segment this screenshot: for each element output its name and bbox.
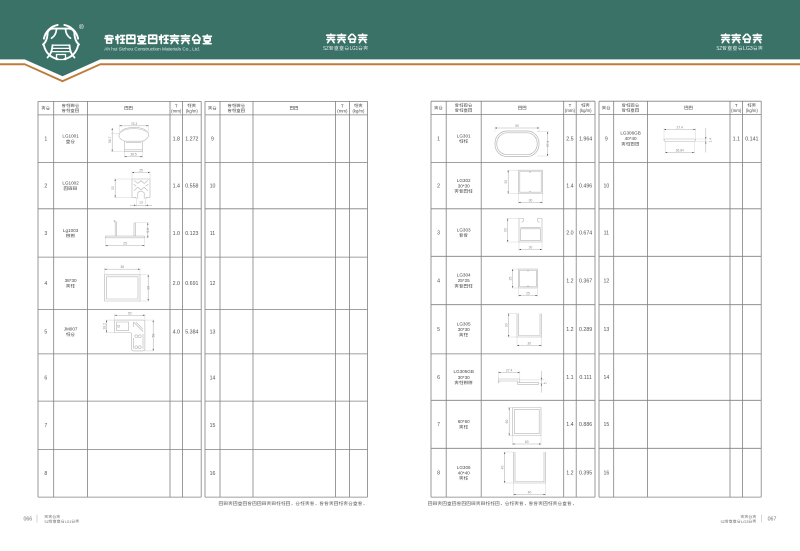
svg-text:38*30: 38*30 — [65, 278, 77, 283]
svg-text:5: 5 — [544, 382, 548, 384]
svg-text:5.384: 5.384 — [185, 330, 198, 336]
svg-text:1.4: 1.4 — [566, 422, 573, 428]
svg-text:(mm): (mm) — [337, 108, 348, 113]
svg-text:LG306: LG306 — [457, 465, 471, 470]
svg-text:LG305GB: LG305GB — [453, 369, 473, 374]
svg-text:9: 9 — [211, 137, 214, 143]
svg-text:0.496: 0.496 — [579, 184, 592, 190]
svg-text:3: 3 — [44, 231, 47, 237]
svg-text:1.1: 1.1 — [566, 375, 573, 381]
svg-text:12: 12 — [210, 281, 216, 287]
svg-text:25*25: 25*25 — [458, 278, 470, 283]
svg-text:LG306GB: LG306GB — [620, 131, 640, 136]
svg-text:SZ: SZ — [44, 519, 49, 524]
svg-text:Ah hui Sizhou Construction Mat: Ah hui Sizhou Construction Materials Co.… — [104, 47, 200, 52]
svg-text:14: 14 — [210, 375, 216, 381]
svg-text:0.674: 0.674 — [579, 230, 592, 236]
svg-text:4: 4 — [437, 278, 440, 284]
svg-text:12: 12 — [603, 278, 609, 284]
svg-text:27.4: 27.4 — [506, 369, 513, 373]
svg-text:7: 7 — [44, 423, 47, 429]
svg-text:1.2: 1.2 — [566, 278, 573, 284]
svg-text:40: 40 — [528, 491, 532, 495]
svg-text:LG3: LG3 — [741, 519, 749, 524]
svg-text:1.2: 1.2 — [566, 471, 573, 477]
svg-text:11: 11 — [604, 230, 609, 236]
svg-text:60: 60 — [525, 440, 529, 444]
svg-text:(kg/m): (kg/m) — [186, 108, 198, 113]
svg-text:6: 6 — [44, 375, 47, 381]
svg-text:10: 10 — [603, 183, 609, 189]
svg-text:(mm): (mm) — [171, 108, 182, 113]
svg-text:50: 50 — [151, 334, 155, 338]
svg-text:0.111: 0.111 — [579, 375, 592, 381]
svg-text:(kg/m): (kg/m) — [580, 108, 592, 113]
svg-text:30: 30 — [504, 228, 508, 232]
svg-text:38.5: 38.5 — [130, 153, 137, 157]
svg-text:38.2: 38.2 — [102, 323, 106, 330]
svg-text:30: 30 — [504, 180, 508, 184]
svg-text:25: 25 — [509, 277, 513, 281]
svg-text:3: 3 — [437, 230, 440, 236]
svg-text:1: 1 — [437, 136, 440, 142]
svg-text:1.2: 1.2 — [566, 327, 573, 333]
svg-text:2: 2 — [437, 183, 440, 189]
svg-text:1.964: 1.964 — [579, 136, 592, 142]
svg-text:1.4: 1.4 — [709, 138, 713, 143]
svg-text:LG305: LG305 — [457, 321, 471, 326]
svg-text:LG302: LG302 — [457, 178, 471, 183]
svg-text:1.4: 1.4 — [173, 184, 180, 190]
svg-text:16: 16 — [603, 471, 609, 477]
svg-text:LG1: LG1 — [350, 46, 359, 52]
svg-text:JM007: JM007 — [64, 327, 78, 332]
svg-text:(mm): (mm) — [565, 108, 576, 113]
svg-text:30: 30 — [505, 323, 509, 327]
svg-text:11: 11 — [210, 231, 215, 237]
svg-text:30*30: 30*30 — [458, 183, 470, 188]
svg-text:13: 13 — [210, 329, 216, 335]
svg-text:8: 8 — [44, 471, 47, 477]
svg-text:066: 066 — [23, 516, 32, 522]
svg-text:37.4: 37.4 — [677, 126, 684, 130]
svg-text:0.558: 0.558 — [185, 184, 198, 190]
svg-text:SZ: SZ — [323, 46, 329, 52]
svg-text:25: 25 — [526, 292, 530, 296]
svg-text:LG1002: LG1002 — [62, 181, 79, 186]
svg-text:2: 2 — [44, 183, 47, 189]
svg-text:067: 067 — [768, 516, 777, 522]
svg-text:14: 14 — [603, 375, 609, 381]
svg-text:2.5: 2.5 — [566, 136, 573, 142]
svg-text:LG304: LG304 — [457, 273, 471, 278]
svg-text:SZ: SZ — [716, 46, 722, 52]
svg-text:0.691: 0.691 — [185, 281, 198, 287]
svg-text:5: 5 — [44, 329, 47, 335]
svg-text:0.886: 0.886 — [579, 422, 592, 428]
svg-text:1.1: 1.1 — [733, 136, 740, 142]
svg-text:0.395: 0.395 — [579, 471, 592, 477]
svg-text:15: 15 — [210, 423, 216, 429]
svg-text:2.0: 2.0 — [566, 230, 573, 236]
svg-text:40*40: 40*40 — [458, 470, 470, 475]
svg-text:13: 13 — [603, 327, 609, 333]
svg-text:33: 33 — [111, 186, 115, 190]
svg-text:25: 25 — [139, 169, 143, 173]
svg-text:Lg1003: Lg1003 — [63, 228, 79, 233]
svg-text:1: 1 — [44, 137, 47, 143]
svg-text:38: 38 — [120, 265, 124, 269]
svg-text:30: 30 — [529, 246, 533, 250]
svg-text:13: 13 — [139, 201, 143, 205]
svg-text:1.0: 1.0 — [173, 231, 180, 237]
svg-text:8: 8 — [437, 471, 440, 477]
svg-text:4.0: 4.0 — [173, 330, 180, 336]
svg-text:7: 7 — [437, 422, 440, 428]
svg-text:30: 30 — [527, 342, 531, 346]
svg-text:9.6: 9.6 — [146, 228, 150, 233]
svg-text:®: ® — [79, 23, 84, 31]
svg-text:(mm): (mm) — [731, 108, 742, 113]
svg-text:(kg/m): (kg/m) — [746, 108, 758, 113]
svg-text:16: 16 — [210, 471, 216, 477]
svg-text:36.84: 36.84 — [676, 149, 684, 153]
svg-text:25: 25 — [123, 241, 127, 245]
svg-text:58.7: 58.7 — [108, 136, 112, 143]
svg-text:30: 30 — [146, 286, 150, 290]
svg-text:60: 60 — [505, 420, 509, 424]
svg-text:4: 4 — [44, 281, 47, 287]
svg-text:2.0: 2.0 — [173, 281, 180, 287]
svg-text:LG1: LG1 — [65, 519, 72, 524]
svg-text:LG301: LG301 — [457, 133, 471, 138]
svg-text:10: 10 — [210, 183, 216, 189]
svg-text:30*30: 30*30 — [458, 375, 470, 380]
svg-text:15: 15 — [603, 422, 609, 428]
svg-text:5: 5 — [437, 327, 440, 333]
svg-text:(kg/m): (kg/m) — [353, 108, 365, 113]
svg-text:SZ: SZ — [720, 519, 725, 524]
svg-text:0.141: 0.141 — [745, 136, 758, 142]
svg-text:50: 50 — [128, 311, 132, 315]
svg-text:0.367: 0.367 — [579, 278, 592, 284]
svg-text:LG303: LG303 — [457, 227, 471, 232]
svg-text:30*30: 30*30 — [458, 327, 470, 332]
svg-text:40*40: 40*40 — [625, 136, 637, 141]
svg-text:40: 40 — [501, 466, 505, 470]
svg-text:60*60: 60*60 — [458, 419, 470, 424]
svg-text:90: 90 — [515, 124, 519, 128]
svg-text:37.4: 37.4 — [546, 140, 550, 147]
svg-text:1.4: 1.4 — [566, 184, 573, 190]
svg-text:30: 30 — [529, 199, 533, 203]
svg-text:9: 9 — [605, 136, 608, 142]
svg-text:LG1001: LG1001 — [62, 134, 79, 139]
svg-text:0.289: 0.289 — [579, 327, 592, 333]
svg-text:LG3: LG3 — [743, 46, 753, 52]
svg-text:1.8: 1.8 — [173, 137, 180, 143]
svg-text:6: 6 — [437, 375, 440, 381]
svg-text:0.123: 0.123 — [185, 231, 198, 237]
svg-text:1.272: 1.272 — [185, 137, 198, 143]
svg-text:78.3: 78.3 — [131, 122, 138, 126]
